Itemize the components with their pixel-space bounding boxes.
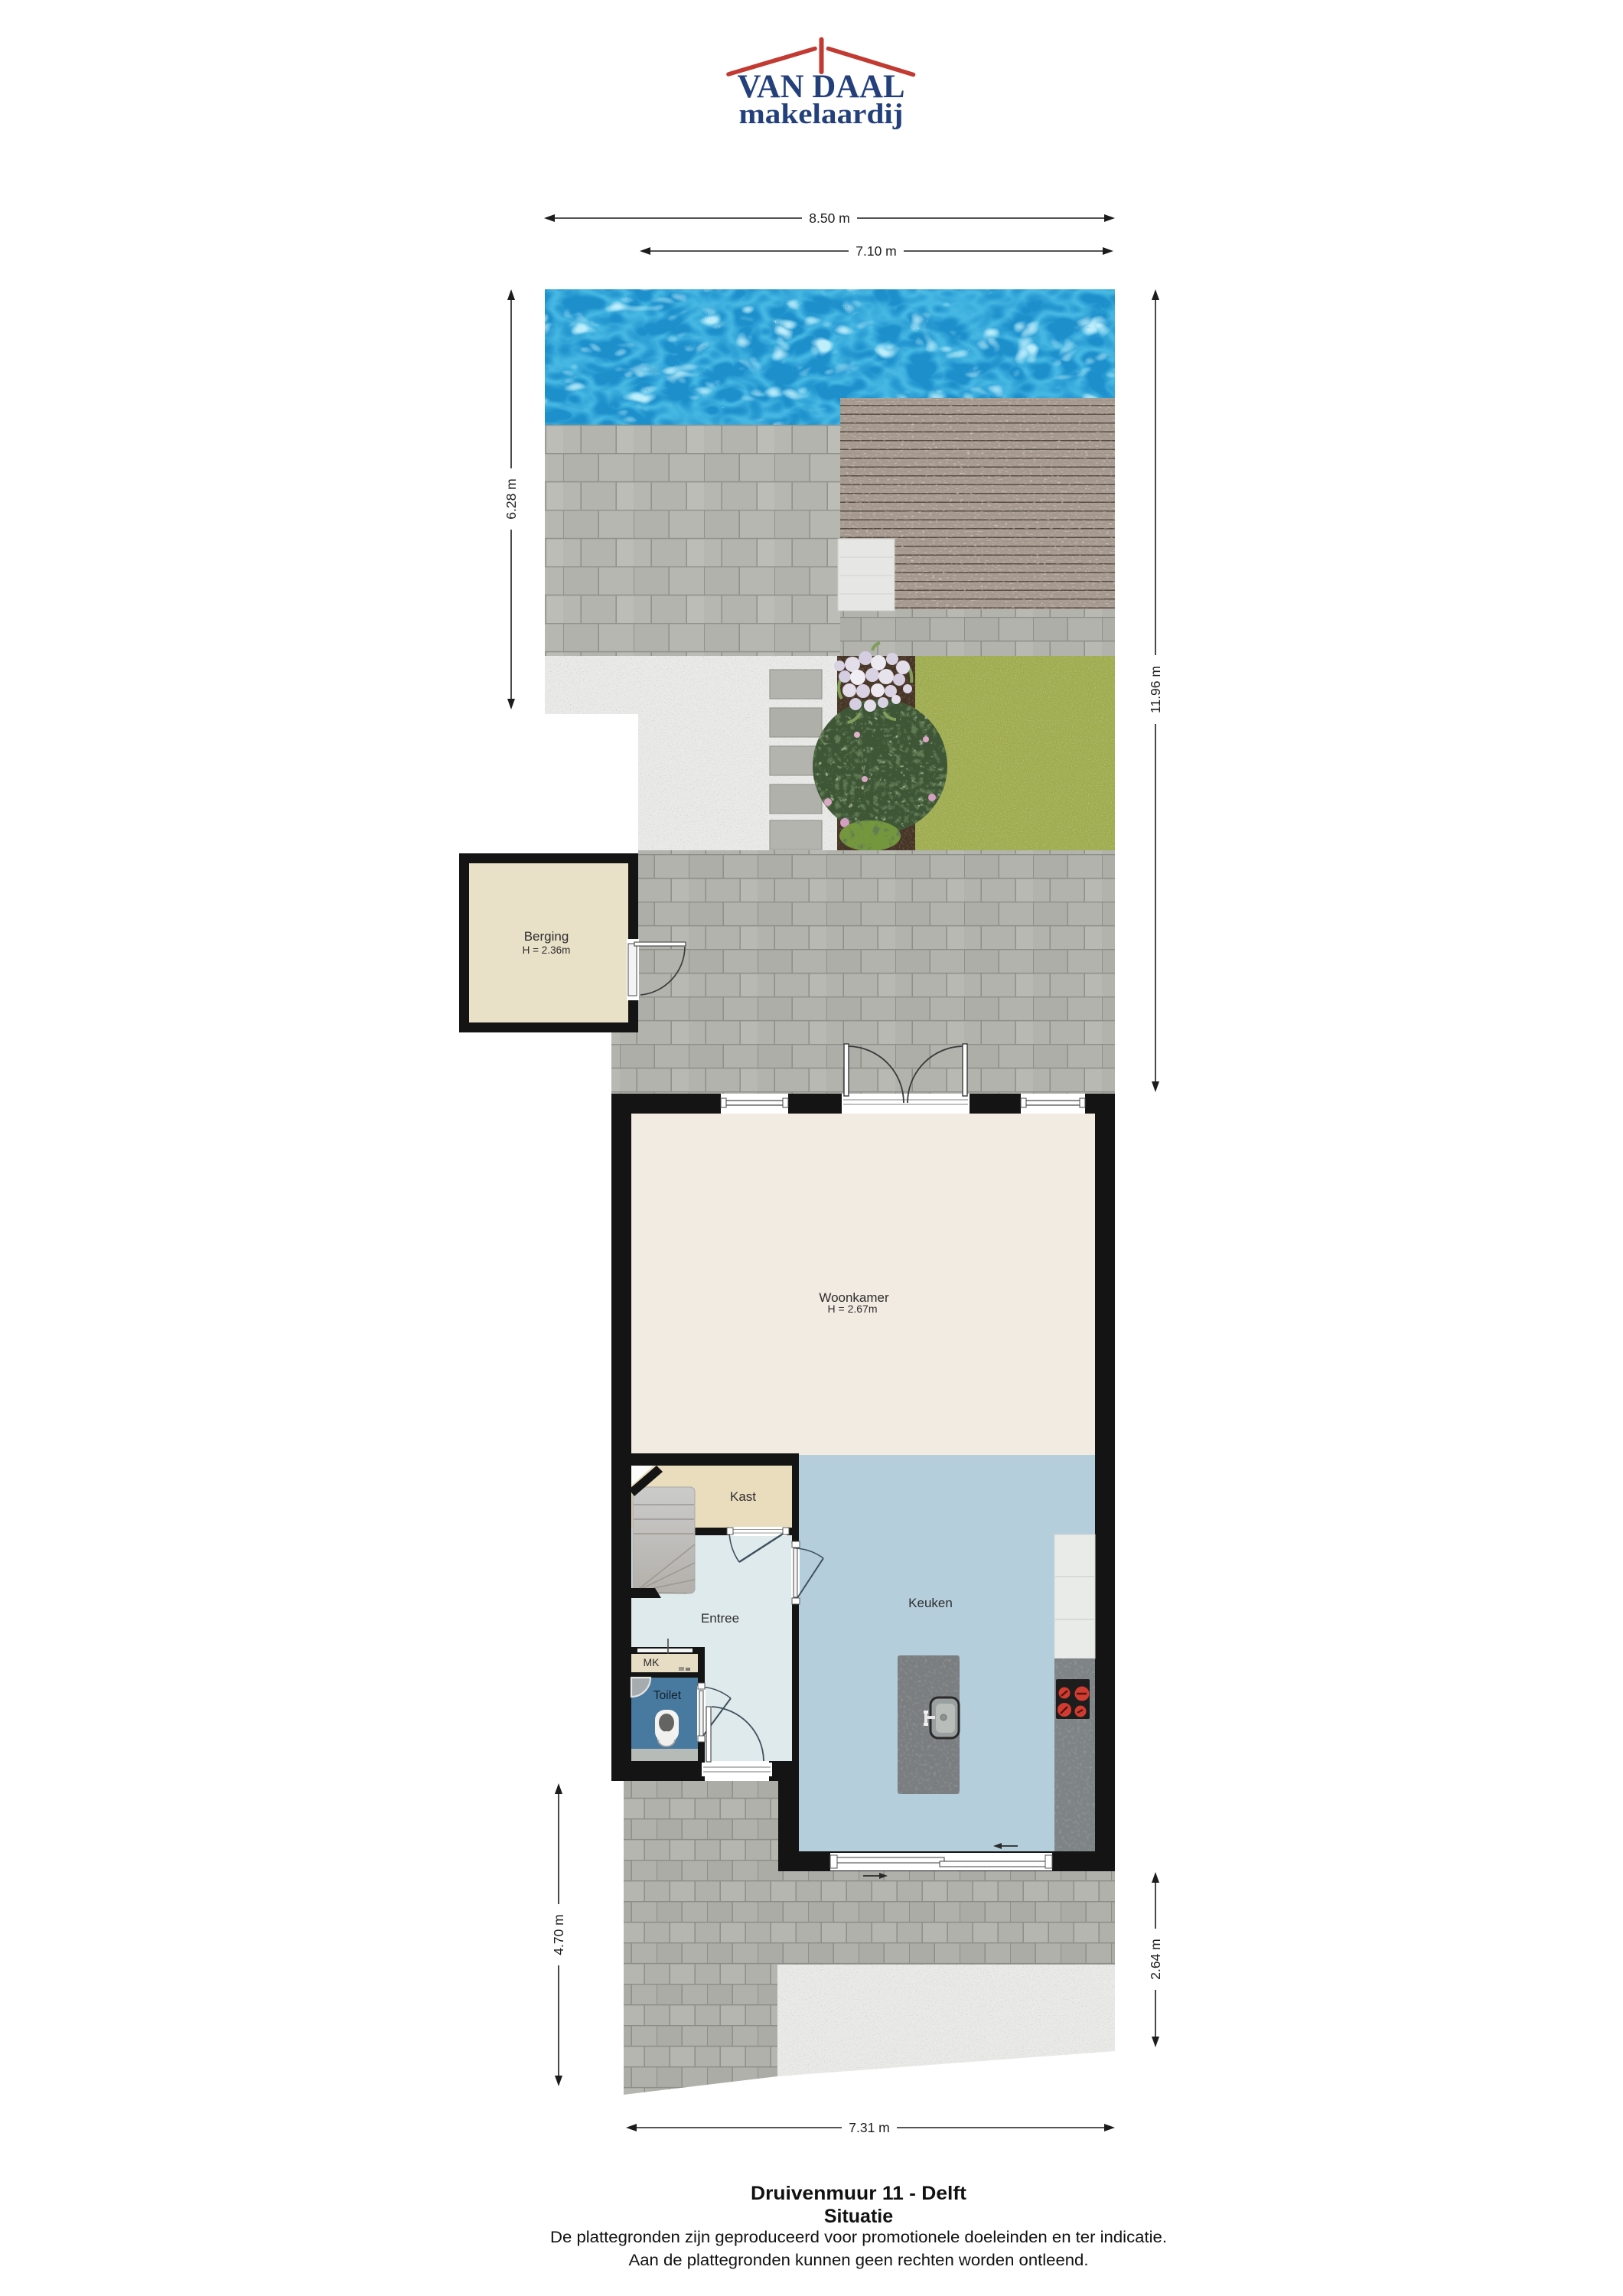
svg-text:11.96 m: 11.96 m — [1148, 666, 1163, 713]
svg-text:7.31 m: 7.31 m — [849, 2120, 890, 2135]
svg-text:2.64 m: 2.64 m — [1148, 1939, 1163, 1980]
svg-text:Aan de plattegronden kunnen ge: Aan de plattegronden kunnen geen rechten… — [629, 2251, 1089, 2269]
svg-text:Berging: Berging — [524, 929, 569, 944]
svg-text:Entree: Entree — [701, 1611, 739, 1626]
svg-text:4.70 m: 4.70 m — [551, 1914, 566, 1955]
svg-text:Druivenmuur 11 - Delft: Druivenmuur 11 - Delft — [751, 2183, 967, 2204]
svg-text:Keuken: Keuken — [908, 1596, 953, 1610]
svg-text:Kast: Kast — [730, 1489, 756, 1504]
svg-text:makelaardij: makelaardij — [739, 99, 904, 130]
svg-text:7.10 m: 7.10 m — [855, 243, 897, 259]
svg-text:Toilet: Toilet — [653, 1689, 682, 1702]
svg-text:6.28 m: 6.28 m — [504, 478, 519, 520]
svg-text:MK: MK — [644, 1656, 660, 1668]
svg-text:8.50 m: 8.50 m — [809, 210, 850, 226]
svg-text:Situatie: Situatie — [824, 2206, 893, 2227]
svg-text:H = 2.67m: H = 2.67m — [828, 1303, 878, 1315]
svg-text:De plattegronden zijn geproduc: De plattegronden zijn geproduceerd voor … — [550, 2228, 1167, 2246]
svg-text:H = 2.36m: H = 2.36m — [523, 944, 571, 956]
